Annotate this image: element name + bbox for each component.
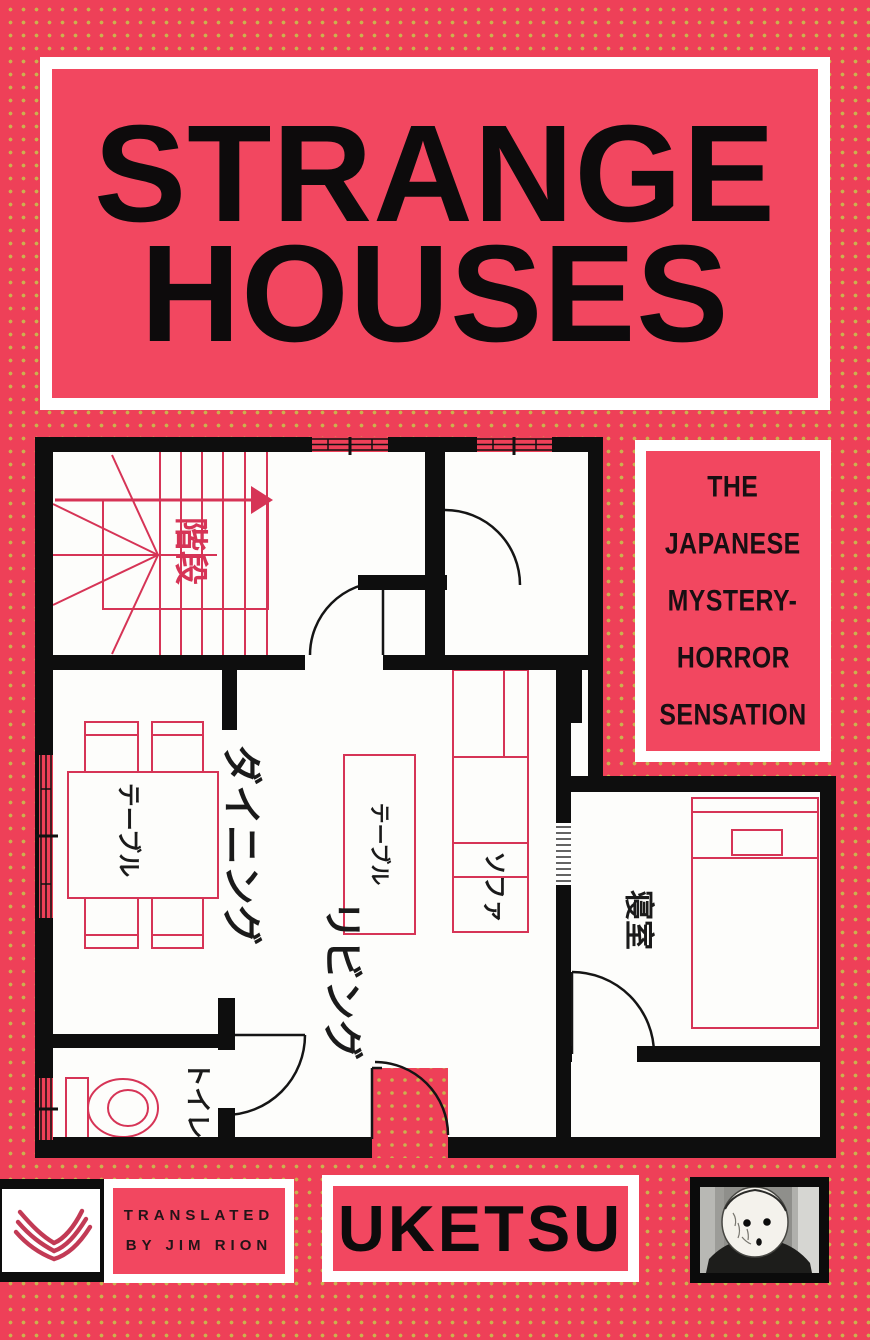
mask-mouth bbox=[756, 1238, 762, 1246]
masked-figure-photo bbox=[700, 1187, 819, 1273]
living-room-label: リビング bbox=[320, 900, 364, 1060]
entrance-notch bbox=[372, 1062, 448, 1158]
mask-left-eye bbox=[743, 1219, 751, 1227]
floor-plan-illustration: 階段 テーブル ダイニング テーブル リビング ソファ トイレ 寝室 bbox=[35, 437, 836, 1158]
toilet-label: トイレ bbox=[183, 1061, 213, 1139]
sofa-label: ソファ bbox=[481, 851, 508, 923]
author-name: UKETSU bbox=[338, 1191, 623, 1266]
title-panel: STRANGE HOUSES bbox=[40, 57, 830, 410]
floor-plan-svg: 階段 テーブル ダイニング テーブル リビング ソファ トイレ 寝室 bbox=[35, 437, 836, 1158]
author-photo-box bbox=[690, 1177, 829, 1283]
mask-right-eye bbox=[763, 1218, 771, 1226]
title-line-1: STRANGE bbox=[94, 122, 776, 226]
white-mask bbox=[722, 1187, 788, 1257]
plan-floor-bedroom-wing bbox=[556, 776, 836, 1158]
window-bedroom-wall bbox=[556, 823, 571, 885]
dining-room-label: ダイニング bbox=[219, 745, 263, 945]
dining-table-label: テーブル bbox=[115, 783, 143, 878]
translator-line-1: TRANSLATED bbox=[124, 1201, 275, 1231]
translator-panel: TRANSLATED BY JIM RION bbox=[104, 1179, 294, 1283]
stairs-label: 階段 bbox=[171, 517, 210, 585]
living-table-label: テーブル bbox=[368, 803, 392, 886]
publisher-logo-box bbox=[0, 1179, 110, 1282]
title-line-2: HOUSES bbox=[141, 242, 730, 346]
harpervia-logo-icon bbox=[3, 1190, 99, 1272]
translator-line-2: BY JIM RION bbox=[126, 1231, 272, 1261]
author-panel: UKETSU bbox=[322, 1175, 639, 1282]
book-cover: { "book_cover": { "title": { "line1": "S… bbox=[0, 0, 870, 1340]
bedroom-label: 寝室 bbox=[622, 890, 656, 950]
